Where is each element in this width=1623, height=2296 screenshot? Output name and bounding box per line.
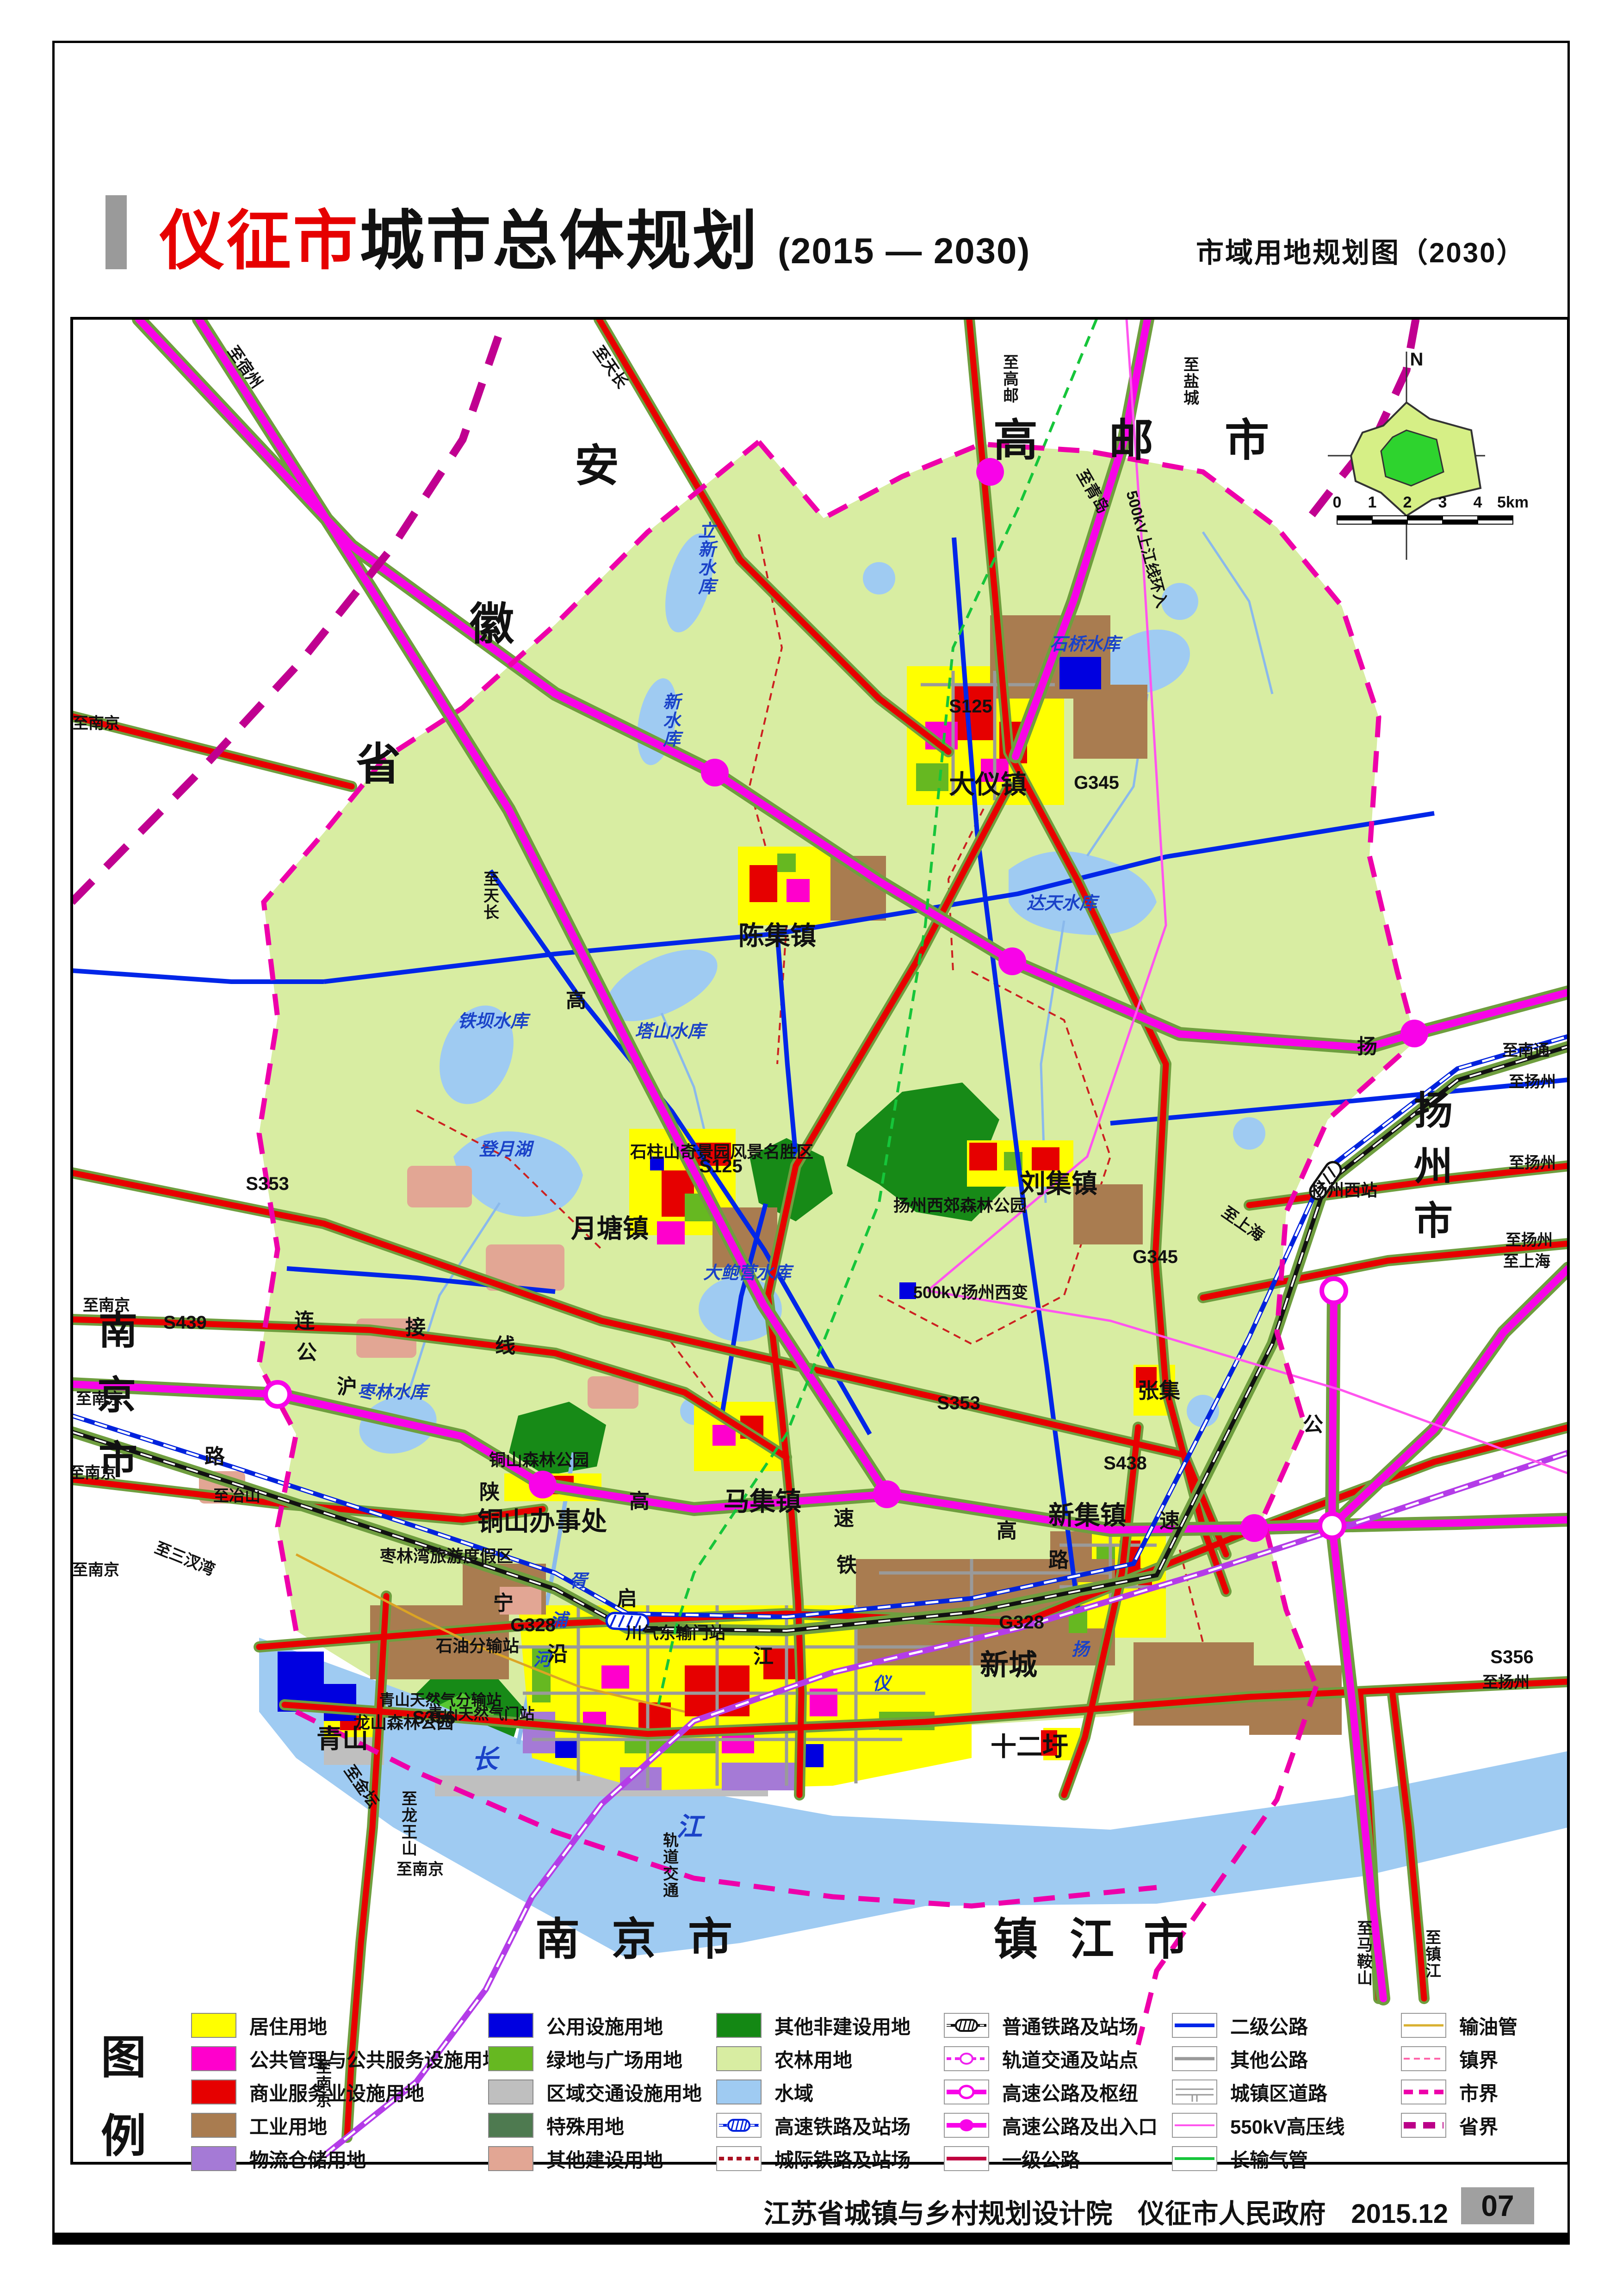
- map-label: 新集镇: [1048, 1501, 1126, 1530]
- legend-swatch: [488, 2113, 533, 2138]
- legend-item: 长输气管: [1172, 2142, 1344, 2175]
- map-label: 川气东输门站: [626, 1623, 725, 1642]
- map-label: 月塘镇: [571, 1214, 649, 1243]
- map-label: 至上海: [1503, 1253, 1550, 1270]
- legend-item: 公共管理与公共服务设施用地: [191, 2042, 502, 2075]
- legend-column-2: 公用设施用地绿地与广场用地区域交通设施用地特殊用地其他建设用地: [488, 2009, 702, 2175]
- legend-item-label: 省界: [1459, 2111, 1498, 2140]
- legend-column-4: 普通铁路及站场轨道交通及站点高速公路及枢纽高速公路及出入口一级公路: [944, 2009, 1158, 2175]
- map-label: 公: [297, 1341, 317, 1364]
- map-label: N: [1410, 349, 1424, 370]
- legend-symbol-gas: [1172, 2146, 1217, 2171]
- legend-symbol-expwy-hub: [944, 2079, 989, 2104]
- legend-swatch: [191, 2046, 236, 2071]
- map-label: 江: [753, 1645, 774, 1668]
- legend-item-label: 工业用地: [249, 2111, 327, 2140]
- map-label: 至扬州: [1509, 1154, 1556, 1172]
- map-label: S353: [937, 1393, 980, 1413]
- scale-label: 2: [1403, 494, 1412, 511]
- legend-column-5: 二级公路其他公路城镇区道路550kV高压线长输气管: [1172, 2009, 1344, 2175]
- legend-item: 物流仓储用地: [191, 2142, 502, 2175]
- legend-item: 一级公路: [944, 2142, 1158, 2175]
- map-label: G345: [1074, 773, 1119, 793]
- map-label: 至南京: [76, 1390, 123, 1408]
- map-label: 速: [834, 1507, 854, 1530]
- legend-symbol-rail-normal: [944, 2013, 989, 2038]
- scale-label: 1: [1368, 494, 1377, 511]
- legend-item-label: 普通铁路及站场: [1002, 2011, 1138, 2040]
- map-label: 至南京: [83, 1297, 130, 1314]
- map-label: 南: [99, 1309, 137, 1352]
- map-label: 至南京: [73, 715, 120, 732]
- legend-item: 公用设施用地: [488, 2009, 702, 2042]
- legend-item: 城际铁路及站场: [716, 2142, 911, 2175]
- legend-item-label: 其他公路: [1230, 2045, 1308, 2073]
- map-label: 高: [629, 1490, 650, 1513]
- map-label: S356: [412, 1708, 455, 1728]
- map-label: 枣林水库: [357, 1383, 430, 1402]
- legend-item-label: 居住用地: [249, 2011, 327, 2040]
- legend-title-char-1: 图: [101, 2021, 146, 2086]
- map-label: 扬: [1072, 1640, 1091, 1659]
- map-label: 沿: [547, 1643, 568, 1665]
- map-label: 十二圩: [991, 1732, 1068, 1761]
- legend-item: 镇界: [1401, 2042, 1518, 2075]
- legend-symbol-expwy-exit: [944, 2113, 989, 2138]
- legend-swatch: [716, 2079, 762, 2104]
- map-label: 陈集镇: [738, 921, 816, 950]
- legend-item-label: 特殊用地: [546, 2111, 624, 2140]
- map-label: 扬州西郊森林公园: [893, 1196, 1027, 1215]
- map-label: 至扬州: [1505, 1232, 1553, 1249]
- map-label: 铁: [836, 1554, 857, 1577]
- legend-symbol-road-other: [1172, 2046, 1217, 2071]
- legend-item: 其他建设用地: [488, 2142, 702, 2175]
- footer-date: 2015.12: [1351, 2199, 1448, 2229]
- scale-label: 0: [1333, 494, 1342, 511]
- map-canvas: 012345km 高邮市安徽省南京市南京市镇江市扬州市大仪镇陈集镇月塘镇刘集镇马…: [0, 0, 1623, 2296]
- map-label: 新城: [980, 1649, 1037, 1681]
- map-label: S439: [163, 1312, 206, 1333]
- map-label: 沪: [337, 1375, 357, 1398]
- map-label: 路: [1048, 1549, 1069, 1572]
- map-label: G328: [510, 1615, 556, 1635]
- map-label: 大仪镇: [949, 770, 1027, 799]
- map-label: 仪: [873, 1674, 892, 1694]
- legend-item: 居住用地: [191, 2009, 502, 2042]
- legend-symbol-city-bd: [1401, 2079, 1446, 2104]
- map-label: 市: [688, 1915, 732, 1964]
- legend-item-label: 城际铁路及站场: [774, 2145, 911, 2173]
- map-label: G345: [1133, 1247, 1178, 1267]
- map-label: 长: [472, 1745, 500, 1774]
- map-label: 大鲍营水库: [703, 1263, 794, 1283]
- legend-symbol-urban-road: [1172, 2079, 1217, 2104]
- map-label: 邮: [1109, 416, 1153, 465]
- legend-item: 工业用地: [191, 2109, 502, 2142]
- map-label: 铜山办事处: [477, 1507, 607, 1536]
- legend-swatch: [191, 2013, 236, 2038]
- map-label: 镇: [993, 1915, 1038, 1964]
- map-label: S353: [246, 1174, 289, 1194]
- legend-item-label: 高速铁路及站场: [774, 2111, 911, 2140]
- legend-item: 普通铁路及站场: [944, 2009, 1158, 2042]
- legend-item-label: 长输气管: [1230, 2145, 1308, 2173]
- legend-swatch: [191, 2146, 236, 2171]
- map-label: 铜山森林公园: [489, 1450, 589, 1469]
- scale-label: 3: [1438, 494, 1447, 511]
- legend-item-label: 绿地与广场用地: [546, 2045, 682, 2073]
- legend-symbol-prov-bd: [1401, 2113, 1446, 2138]
- legend-symbol-road1: [944, 2146, 989, 2171]
- legend-item: 商业服务业设施用地: [191, 2075, 502, 2109]
- legend-item-label: 物流仓储用地: [249, 2145, 366, 2173]
- map-label: 市: [1144, 1915, 1188, 1964]
- map-label: S125: [949, 696, 992, 717]
- legend-item: 水域: [716, 2075, 911, 2109]
- legend-swatch: [488, 2046, 533, 2071]
- legend-symbol-metro: [944, 2046, 989, 2071]
- map-label: 至南通: [1502, 1042, 1549, 1059]
- legend-item: 区域交通设施用地: [488, 2075, 702, 2109]
- legend-item-label: 二级公路: [1230, 2011, 1308, 2040]
- map-label: 江: [676, 1813, 706, 1842]
- legend-symbol-town-bd: [1401, 2046, 1446, 2071]
- map-label: 马集镇: [724, 1487, 801, 1516]
- map-label: 州: [1414, 1145, 1453, 1188]
- legend-item: 轨道交通及站点: [944, 2042, 1158, 2075]
- legend-item: 高速铁路及站场: [716, 2109, 911, 2142]
- map-label: 扬: [1414, 1089, 1453, 1133]
- footer-gov: 仪征市人民政府: [1138, 2199, 1326, 2229]
- legend-item: 市界: [1401, 2075, 1518, 2109]
- map-label: 至扬州: [1509, 1073, 1556, 1091]
- map-label: 石油分输站: [436, 1636, 519, 1655]
- footer: 江苏省城镇与乡村规划设计院仪征市人民政府2015.12: [555, 2192, 1448, 2231]
- legend-item-label: 一级公路: [1002, 2145, 1080, 2173]
- legend-item: 输油管: [1401, 2009, 1518, 2042]
- legend-item-label: 550kV高压线: [1230, 2111, 1344, 2140]
- map-label: 至马鞍山: [1357, 1920, 1373, 1987]
- legend-swatch: [716, 2013, 762, 2038]
- map-label: 至扬州: [1482, 1674, 1530, 1691]
- map-label: 至南京: [396, 1861, 444, 1878]
- map-label: 500kV扬州西变: [913, 1283, 1028, 1302]
- legend-item-label: 城镇区道路: [1230, 2078, 1327, 2106]
- legend-item: 其他非建设用地: [716, 2009, 911, 2042]
- legend-item-label: 输油管: [1459, 2011, 1518, 2040]
- map-label: 宁: [493, 1592, 514, 1615]
- map-label: 至南京: [72, 1561, 119, 1579]
- map-label: 轨道交通: [663, 1832, 679, 1900]
- map-label: 至南京: [69, 1464, 116, 1482]
- legend-symbol-rail-hs: [716, 2113, 762, 2138]
- legend-item-label: 区域交通设施用地: [546, 2078, 702, 2106]
- legend-item: 特殊用地: [488, 2109, 702, 2142]
- map-label: 铁坝水库: [458, 1012, 531, 1031]
- map-label: 扬: [1357, 1035, 1377, 1058]
- map-label: 达天水库: [1027, 894, 1100, 913]
- map-label: 新水库: [663, 693, 683, 749]
- map-label: 塔山水库: [635, 1022, 708, 1041]
- map-label: 至盐城: [1183, 356, 1199, 407]
- map-label: 市: [1414, 1199, 1453, 1243]
- legend-item-label: 其他非建设用地: [774, 2011, 911, 2040]
- map-label: 枣林湾旅游度假区: [379, 1547, 513, 1566]
- map-label: 至冶山: [213, 1487, 260, 1505]
- bottom-rule: [52, 2238, 1570, 2245]
- legend-item-label: 市界: [1459, 2078, 1498, 2106]
- map-label: 徽: [469, 600, 514, 649]
- map-label: 江: [1070, 1915, 1114, 1964]
- legend-item-label: 水域: [774, 2078, 813, 2106]
- map-label: 线: [495, 1335, 515, 1357]
- legend-item: 绿地与广场用地: [488, 2042, 702, 2075]
- map-label: 启: [617, 1587, 637, 1610]
- scale-label: 5km: [1497, 494, 1529, 511]
- legend-symbol-road2: [1172, 2013, 1217, 2038]
- legend-swatch: [488, 2146, 533, 2171]
- map-label: 公: [1303, 1413, 1323, 1436]
- legend-item: 二级公路: [1172, 2009, 1344, 2042]
- map-label: 高: [997, 1520, 1017, 1542]
- legend-column-3: 其他非建设用地农林用地水域高速铁路及站场城际铁路及站场: [716, 2009, 911, 2175]
- map-label: G328: [999, 1612, 1044, 1633]
- legend-item: 农林用地: [716, 2042, 911, 2075]
- map-label: 陕: [479, 1481, 500, 1504]
- legend-swatch: [716, 2046, 762, 2071]
- map-label: 高: [993, 416, 1038, 465]
- legend-column-1: 居住用地公共管理与公共服务设施用地商业服务业设施用地工业用地物流仓储用地: [191, 2009, 502, 2175]
- map-label: 连: [294, 1310, 315, 1332]
- legend-swatch: [191, 2079, 236, 2104]
- legend-item-label: 高速公路及出入口: [1002, 2111, 1158, 2140]
- map-label: 京: [612, 1915, 656, 1964]
- map-label: S438: [1103, 1453, 1146, 1473]
- legend-item-label: 商业服务业设施用地: [249, 2078, 424, 2106]
- map-label: 市: [1225, 416, 1269, 465]
- legend-item-label: 公共管理与公共服务设施用地: [249, 2045, 502, 2073]
- page-number: 07: [1461, 2187, 1534, 2224]
- legend-symbol-hv550: [1172, 2113, 1217, 2138]
- legend-item: 其他公路: [1172, 2042, 1344, 2075]
- map-label: 扬州西站: [1311, 1181, 1377, 1200]
- map-label: 路: [204, 1445, 225, 1468]
- map-label: 刘集镇: [1020, 1169, 1097, 1198]
- map-label: 南: [535, 1915, 580, 1964]
- map-label: 立新水库: [698, 521, 719, 597]
- legend-item: 高速公路及枢纽: [944, 2075, 1158, 2109]
- legend-swatch: [191, 2113, 236, 2138]
- legend-item-label: 公用设施用地: [546, 2011, 663, 2040]
- map-label: 高: [566, 989, 586, 1012]
- legend-column-6: 输油管镇界市界省界: [1401, 2009, 1518, 2142]
- map-label: 至龙王山: [402, 1790, 417, 1858]
- legend-title-char-2: 例: [101, 2099, 146, 2165]
- legend-item-label: 镇界: [1459, 2045, 1498, 2073]
- map-label: S125: [699, 1156, 742, 1176]
- legend-item: 高速公路及出入口: [944, 2109, 1158, 2142]
- legend-symbol-oil: [1401, 2013, 1446, 2038]
- scale-label: 4: [1474, 494, 1482, 511]
- planning-map-page: 仪征市城市总体规划(2015 — 2030) 市域用地规划图（2030）: [0, 0, 1623, 2296]
- legend-swatch: [488, 2079, 533, 2104]
- map-label: 安: [575, 441, 619, 491]
- map-label: S356: [1490, 1647, 1533, 1667]
- footer-org: 江苏省城镇与乡村规划设计院: [763, 2199, 1112, 2229]
- legend-item: 550kV高压线: [1172, 2109, 1344, 2142]
- legend-item-label: 其他建设用地: [546, 2145, 663, 2173]
- map-label: 至镇江: [1425, 1929, 1441, 1980]
- legend-item-label: 轨道交通及站点: [1002, 2045, 1138, 2073]
- map-label: 石桥水库: [1050, 635, 1123, 654]
- map-label: 张集: [1138, 1379, 1180, 1403]
- map-label: 接: [405, 1316, 426, 1339]
- map-label: 至天长: [483, 871, 499, 922]
- legend-item: 城镇区道路: [1172, 2075, 1344, 2109]
- map-label: 登月湖: [479, 1140, 534, 1159]
- map-label: 速: [1159, 1510, 1180, 1532]
- map-label: 胥: [570, 1572, 590, 1591]
- legend-item-label: 农林用地: [774, 2045, 852, 2073]
- legend-symbol-rail-ic: [716, 2146, 762, 2171]
- map-label: 至高邮: [1003, 354, 1019, 405]
- legend-swatch: [488, 2013, 533, 2038]
- legend-item-label: 高速公路及枢纽: [1002, 2078, 1138, 2106]
- legend-item: 省界: [1401, 2109, 1518, 2142]
- map-label: 省: [356, 740, 401, 789]
